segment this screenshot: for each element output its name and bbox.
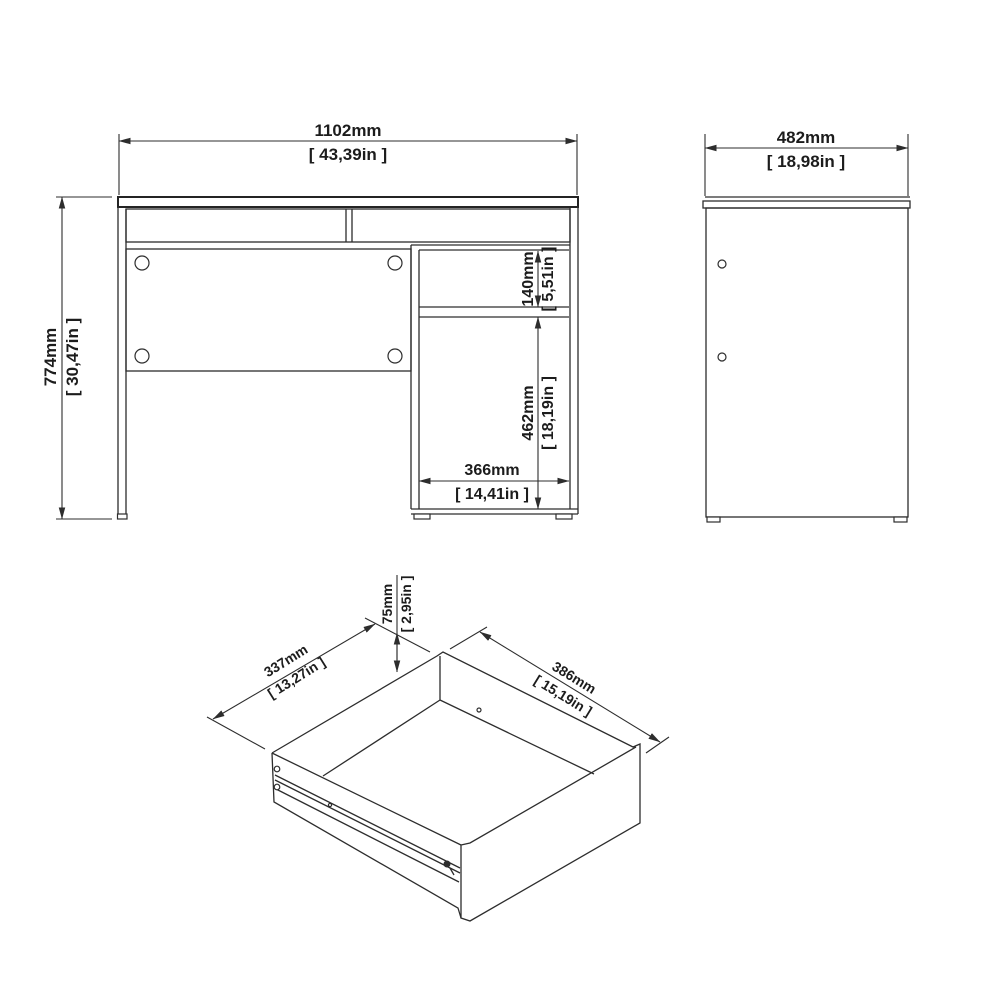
dim-inner-width: 366mm [ 14,41in ] (419, 462, 569, 503)
front-apron-divider (346, 209, 352, 242)
cam-hole (388, 256, 402, 270)
dim-side-depth: 482mm [ 18,98in ] (705, 128, 908, 196)
dim-side-depth-mm: 482mm (777, 128, 836, 147)
dim-drawer-height: 75mm [ 2,95in ] (379, 575, 414, 672)
dim-front-width: 1102mm [ 43,39in ] (119, 121, 577, 195)
side-panel (706, 208, 908, 517)
dim-door-opening-mm: 462mm (520, 385, 537, 440)
front-cabinet-bottom (411, 509, 578, 514)
dim-front-height-in: [ 30,47in ] (63, 318, 82, 396)
cam-hole (388, 349, 402, 363)
dim-front-height: 774mm [ 30,47in ] (41, 197, 112, 519)
front-left-leg (118, 207, 126, 514)
rail-hole (328, 803, 331, 806)
cam-hole (135, 349, 149, 363)
dim-door-opening-in: [ 18,19in ] (540, 376, 557, 450)
front-cabinet-foot (414, 514, 430, 519)
front-modesty-panel (126, 249, 411, 371)
front-left-foot (118, 514, 128, 519)
cam-hole (718, 353, 726, 361)
front-desktop (118, 197, 578, 207)
front-apron (126, 209, 570, 242)
dim-inner-width-in: [ 14,41in ] (455, 486, 529, 503)
dim-drawer-height-in: [ 2,95in ] (398, 576, 414, 633)
side-desktop-edge (703, 201, 910, 208)
front-cabinet-left-wall (411, 245, 419, 509)
dim-door-opening: 462mm [ 18,19in ] (520, 317, 557, 509)
drawer-slide-rail (275, 775, 460, 882)
dim-drawer-opening: 140mm [ 5,51in ] (520, 247, 557, 312)
rail-screw (274, 766, 280, 772)
drawer-isometric-view: 75mm [ 2,95in ] 337mm [ 13,27in ] 386mm … (207, 575, 669, 921)
rail-screw (274, 784, 280, 790)
side-foot (707, 517, 720, 522)
dim-drawer-height-mm: 75mm (379, 584, 395, 624)
dim-side-depth-in: [ 18,98in ] (767, 152, 845, 171)
dim-front-width-mm: 1102mm (314, 121, 381, 140)
rail-screw-front (444, 861, 450, 867)
dim-inner-width-mm: 366mm (464, 462, 519, 479)
side-panel-hole (477, 708, 481, 712)
cam-hole (135, 256, 149, 270)
dim-front-height-mm: 774mm (41, 328, 60, 387)
side-foot (894, 517, 907, 522)
dim-drawer-width: 386mm [ 15,19in ] (450, 627, 669, 753)
dim-front-width-in: [ 43,39in ] (309, 145, 387, 164)
cam-hole (718, 260, 726, 268)
front-cabinet-right-wall (570, 207, 578, 514)
front-view: 1102mm [ 43,39in ] 774mm [ 30,47in ] 140… (41, 121, 578, 519)
front-cabinet-foot (556, 514, 572, 519)
side-view: 482mm [ 18,98in ] (703, 128, 910, 522)
dim-drawer-opening-in: [ 5,51in ] (540, 247, 557, 312)
dim-drawer-opening-mm: 140mm (520, 251, 537, 306)
technical-drawing-page: 1102mm [ 43,39in ] 774mm [ 30,47in ] 140… (0, 0, 1000, 1000)
desk-technical-drawing: 1102mm [ 43,39in ] 774mm [ 30,47in ] 140… (0, 0, 1000, 1000)
